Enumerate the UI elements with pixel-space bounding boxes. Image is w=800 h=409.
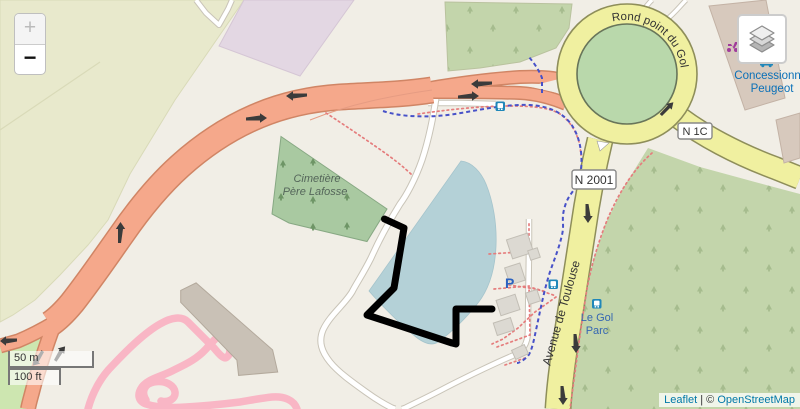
svg-text:Concessionnai: Concessionnai xyxy=(734,70,800,82)
svg-text:Le Gol: Le Gol xyxy=(581,312,613,324)
svg-text:P: P xyxy=(505,275,514,291)
svg-text:Cimetière: Cimetière xyxy=(293,173,340,185)
svg-text:Père Lafosse: Père Lafosse xyxy=(283,186,348,198)
svg-text:N 1C: N 1C xyxy=(682,126,707,138)
svg-text:N 2001: N 2001 xyxy=(575,173,614,187)
svg-text:Parc: Parc xyxy=(586,325,609,337)
svg-text:Peugeot: Peugeot xyxy=(751,83,795,95)
